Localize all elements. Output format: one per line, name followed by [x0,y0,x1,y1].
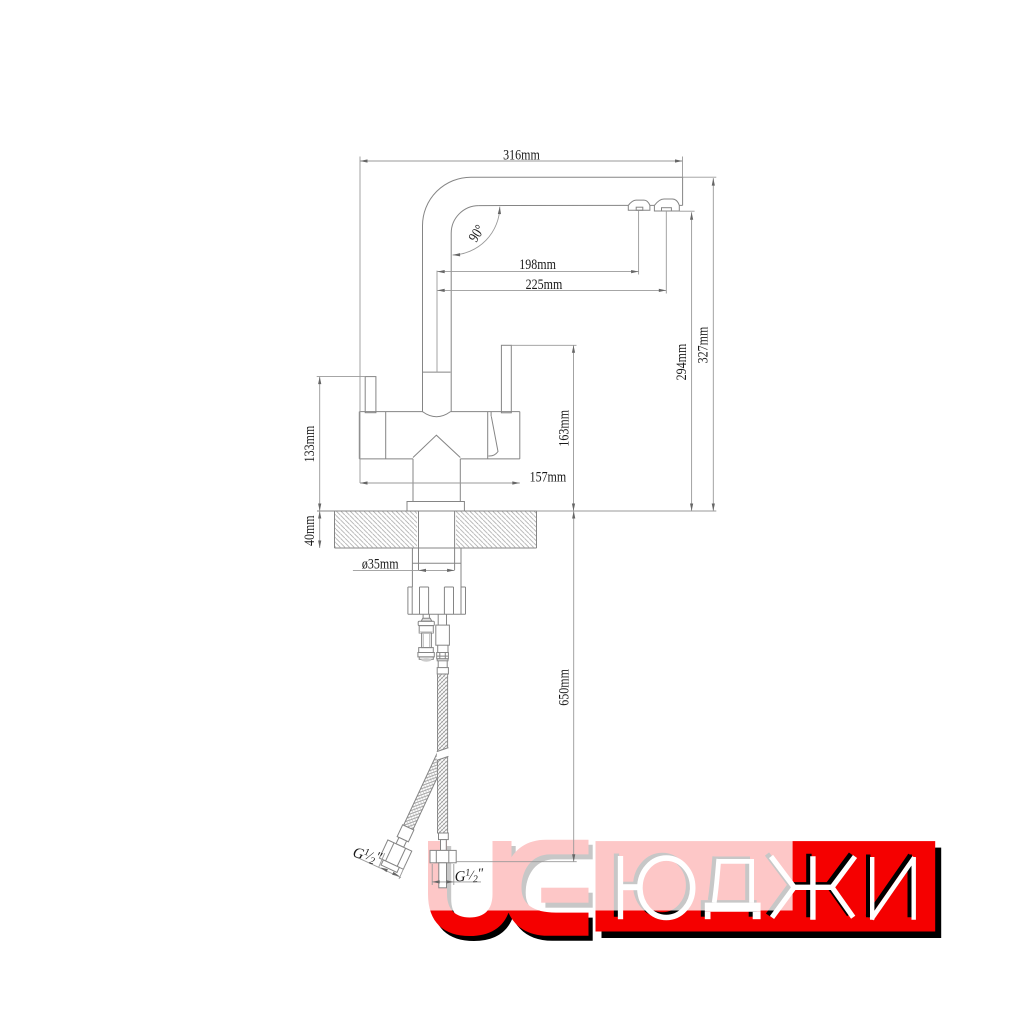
svg-text:163mm: 163mm [555,410,572,447]
svg-text:133mm: 133mm [301,425,318,462]
svg-text:198mm: 198mm [519,256,556,273]
svg-text:ø35mm: ø35mm [362,555,399,572]
svg-text:157mm: 157mm [530,468,567,485]
svg-text:316mm: 316mm [503,146,540,163]
svg-text:225mm: 225mm [526,276,563,293]
svg-text:327mm: 327mm [694,326,711,363]
svg-text:650mm: 650mm [555,669,572,706]
svg-text:294mm: 294mm [673,343,690,380]
svg-text:40mm: 40mm [301,515,318,546]
